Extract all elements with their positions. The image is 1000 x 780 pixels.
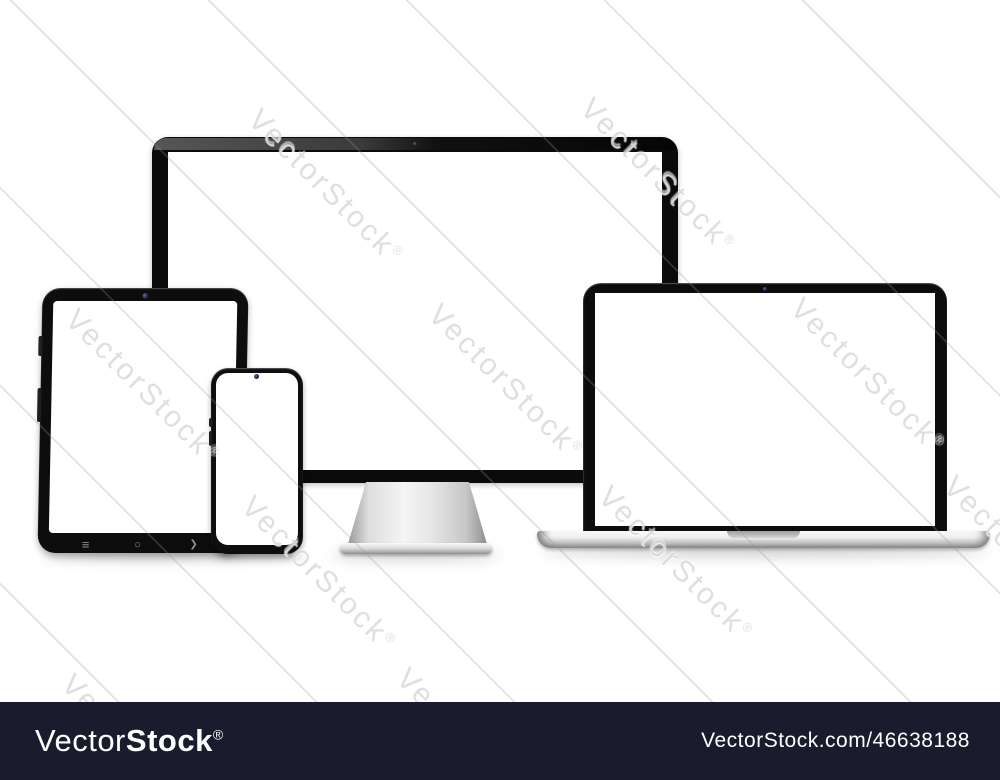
registered-mark: ®: [213, 727, 224, 743]
laptop-camera-icon: [763, 287, 767, 291]
watermark-registered-mark: ®: [721, 231, 738, 248]
watermark-registered-mark: ®: [382, 629, 399, 646]
image-credit-url: VectorStock.com/46638188: [701, 729, 970, 753]
back-icon: ❯: [186, 539, 200, 551]
monitor-camera-icon: [413, 142, 417, 146]
home-icon: ○: [130, 539, 144, 551]
laptop-lid-notch: [727, 531, 800, 538]
tablet-blank-screen: [49, 301, 237, 533]
menu-icon: ≡: [78, 539, 92, 551]
phone-power-button: [209, 418, 212, 427]
laptop-blank-screen: [595, 293, 935, 526]
laptop-base: [537, 531, 990, 548]
monitor-stand-base: [340, 543, 492, 554]
tablet-volume-button: [37, 388, 42, 422]
stock-image-canvas: ≡ ○ ❯ VectorStock®VectorStock®VectorStoc…: [0, 0, 1000, 780]
logo-text-light: Vector: [35, 723, 126, 758]
vectorstock-logo: VectorStock®: [35, 723, 224, 759]
logo-text-bold: Stock: [126, 723, 213, 758]
phone-camera-icon: [254, 374, 259, 379]
phone-volume-button: [209, 431, 212, 446]
monitor-stand-neck: [348, 482, 487, 544]
watermark-registered-mark: ®: [739, 619, 756, 636]
tablet-camera-icon: [142, 293, 148, 299]
laptop: [583, 283, 947, 531]
smartphone: [211, 368, 303, 554]
tablet-volume-button: [38, 336, 42, 356]
phone-blank-screen: [216, 373, 298, 545]
footer-bar: VectorStock® VectorStock.com/46638188: [0, 702, 1000, 780]
